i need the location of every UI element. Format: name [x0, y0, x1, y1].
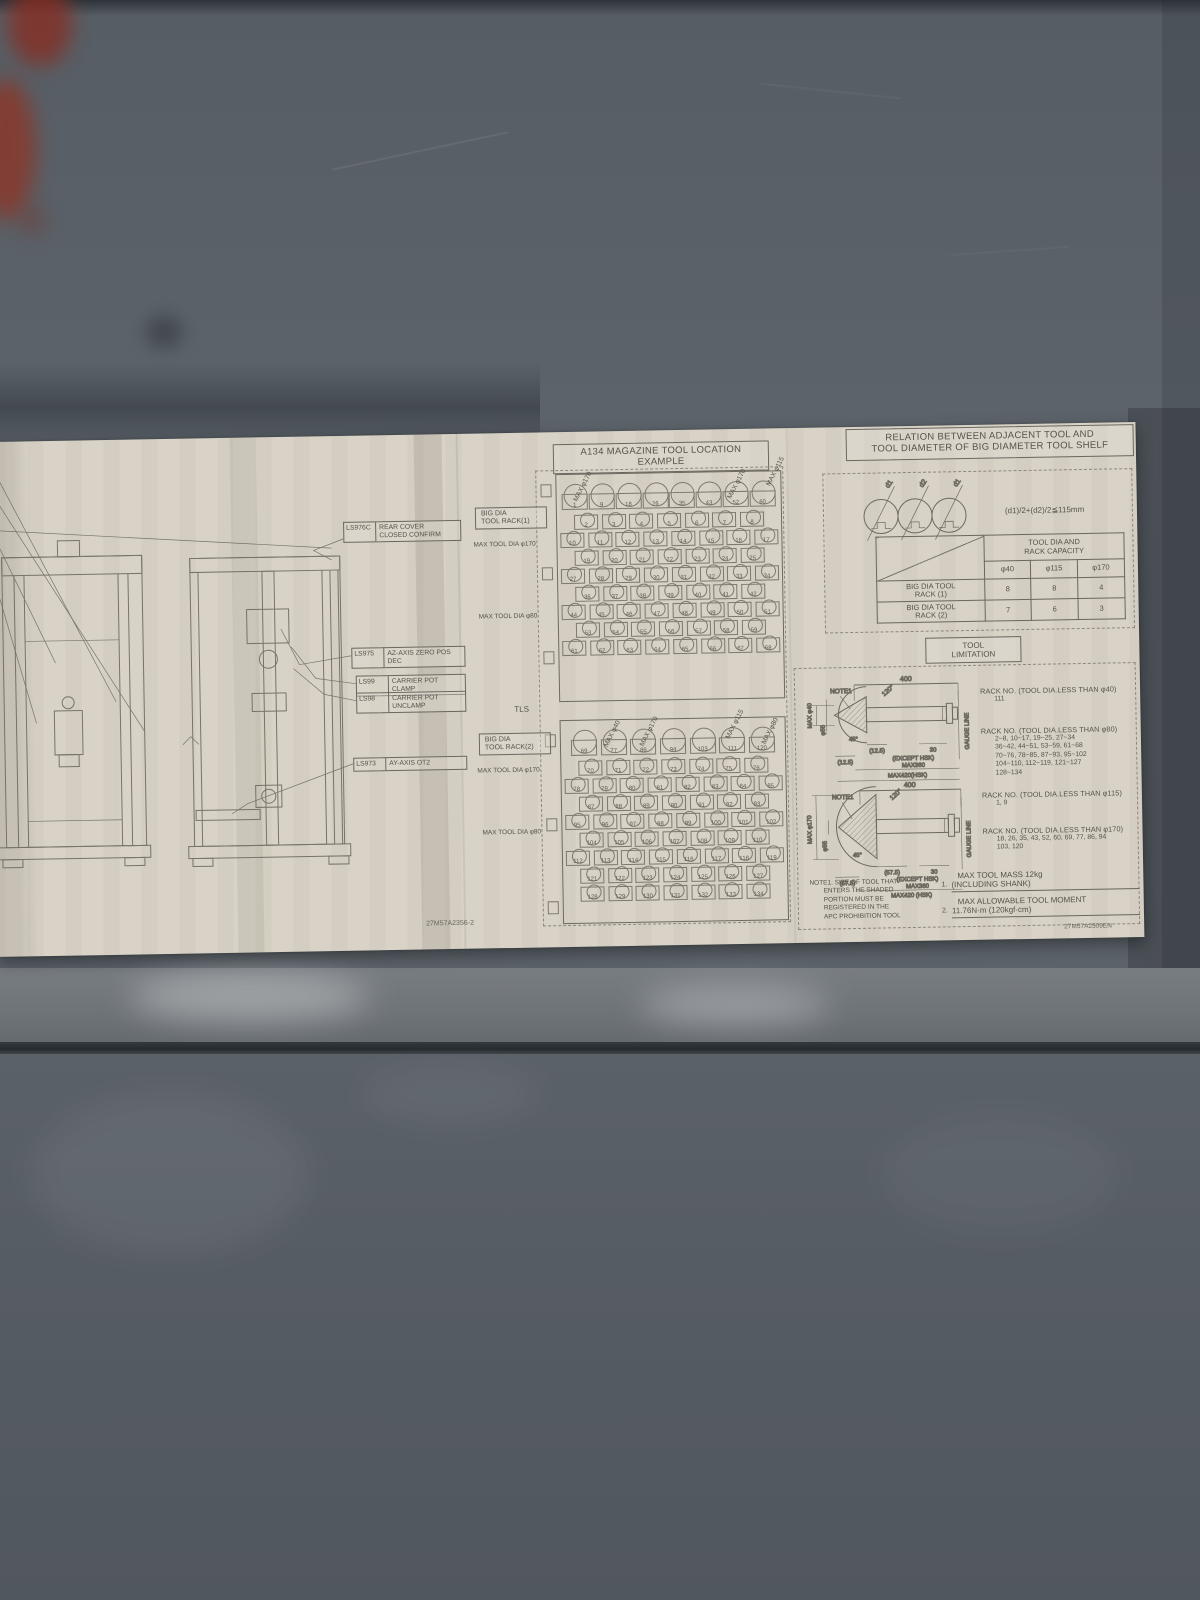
tool-pocket: 125: [691, 866, 715, 881]
tool-pocket: 35: [669, 492, 695, 508]
tool-pocket: 39: [658, 585, 682, 600]
tool-pocket: 13: [643, 531, 667, 546]
limitation-title-l2: LIMITATION: [928, 649, 1018, 660]
tool-pocket: 123: [635, 867, 659, 882]
tool-pocket: 70: [578, 760, 602, 775]
chain-rail-slot: [547, 901, 558, 914]
limit-switch-label: LS976C REAR COVER CLOSED CONFIRM: [343, 520, 461, 543]
tool-pocket: 51: [755, 601, 779, 616]
tool-pocket: 9: [588, 493, 614, 509]
tool-pocket: 113: [594, 850, 618, 865]
pocket-row: 19202122232425: [558, 547, 782, 566]
pocket-row: 4445464748495051: [559, 601, 783, 620]
table-header: TOOL DIA AND RACK CAPACITY: [984, 533, 1124, 561]
d1-label: d1: [884, 479, 894, 489]
rack1-line2: TOOL RACK(1): [477, 517, 545, 526]
rack2-lab2: RACK (2): [880, 611, 983, 621]
adjacent-tools-drawing: d1 d2 d1: [850, 478, 1001, 543]
tool-pocket: 131: [663, 885, 687, 900]
dim-max-dia40: MAX φ40: [807, 702, 813, 728]
tool-pocket: 3: [602, 514, 626, 529]
tool-pocket: 84: [731, 776, 755, 791]
tool-pocket: 126: [718, 866, 742, 881]
tool-pocket: 40: [686, 584, 710, 599]
pocket-row: 9596979899100101102: [562, 811, 786, 830]
tool-pocket: 115: [649, 849, 673, 864]
tool-pocket: 4: [629, 513, 653, 528]
tool-pocket: 119: [760, 847, 784, 862]
tool-pocket: 28: [589, 568, 613, 583]
dim-dia55: φ55: [823, 840, 829, 851]
tool-pocket: 61: [562, 641, 586, 656]
tool-pocket: 66: [701, 638, 725, 653]
ls-desc: AY-AXIS OT2: [386, 757, 433, 769]
panel-lower: [0, 1054, 1200, 1600]
pocket-row: 6162636465666768: [559, 637, 783, 656]
tool-pocket: 79: [592, 778, 616, 793]
tool-pocket: 20: [602, 550, 626, 565]
tool-pocket: 18: [615, 493, 641, 509]
pocket-row: 112113114115116117118119: [563, 847, 787, 866]
tool-pocket: 32: [699, 566, 723, 581]
rack1-val115: 8: [1031, 578, 1078, 600]
tool-pocket: 93: [745, 793, 769, 808]
tool-pocket: 10: [560, 533, 584, 548]
tool-pocket: 116: [677, 849, 701, 864]
pocket-row: 7879808182838485: [562, 775, 786, 794]
tool-pocket: 45: [589, 604, 613, 619]
tool-pocket: 78: [565, 779, 589, 794]
tool-pocket: 100: [704, 812, 728, 827]
rack2-val115: 6: [1031, 599, 1078, 621]
rack2-val170: 3: [1078, 598, 1125, 620]
rack-note-dia40: RACK NO. (TOOL DIA.LESS THAN φ40) 111: [980, 684, 1117, 704]
tool-pocket: 110: [745, 829, 769, 844]
dim-120deg: 120°: [880, 683, 896, 698]
drawing-number-right: 27M57A2509EN: [1064, 923, 1112, 931]
machine-elevation-drawing: [0, 514, 478, 922]
tool-pocket: 41: [713, 584, 737, 599]
tool-pocket: 104: [580, 832, 604, 847]
tool-pocket: 62: [590, 640, 614, 655]
tool-pocket: 5: [657, 513, 681, 528]
tool-pocket: 75: [717, 758, 741, 773]
tool-pocket: 27: [561, 569, 585, 584]
ls-desc: AZ-AXIS ZERO POS DEC: [384, 647, 464, 668]
tool-pocket: 22: [658, 549, 682, 564]
tool-pocket: 112: [566, 851, 590, 866]
tool-pocket: 103: [689, 737, 715, 753]
tool-pocket: 92: [717, 794, 741, 809]
pocket-row: 128129130131132133134: [563, 883, 787, 902]
tool-pocket: 11: [588, 532, 612, 547]
gauge-line-label: GAUGE LINE: [964, 713, 971, 750]
big-dia-rack2-label: BIG DIA TOOL RACK(2): [479, 732, 551, 755]
pocket-row: 121122123124125126127: [563, 865, 787, 884]
tool-pocket: 15: [699, 530, 723, 545]
tool-pocket: 36: [575, 586, 599, 601]
tool-pocket: 59: [742, 620, 766, 635]
machine-panel-photo: LS976C REAR COVER CLOSED CONFIRM LS975 A…: [0, 0, 1200, 1600]
chain-rail-slot: [543, 651, 554, 664]
tool-pocket: 31: [672, 567, 696, 582]
rack2-max-dia: MAX TOOL DIA φ170: [477, 766, 539, 774]
tool-pocket: 47: [645, 603, 669, 618]
tool-pocket: 96: [593, 814, 617, 829]
tool-pocket: 24: [713, 548, 737, 563]
tool-pocket: 82: [675, 777, 699, 792]
scratch-mark: [950, 246, 1070, 256]
tool-pocket: 90: [662, 795, 686, 810]
rack-note-dia115: RACK NO. (TOOL DIA.LESS THAN φ115) 1, 9: [982, 788, 1122, 808]
tool-pocket: 42: [741, 584, 765, 599]
tool-pocket: 17: [754, 529, 778, 544]
gauge-line-label: GAUGE LINE: [966, 821, 973, 858]
tool-pocket: 111: [719, 737, 745, 753]
panel-top-shadow: [0, 0, 1200, 16]
tool-pocket: 54: [603, 622, 627, 637]
pocket-row: 36373839404142: [558, 583, 782, 602]
tool-pocket: 134: [746, 883, 770, 898]
ls-desc: CARRIER POT UNCLAMP: [389, 692, 465, 713]
tool-pocket: 122: [608, 868, 632, 883]
tool-pocket: 68: [756, 637, 780, 652]
tool-pocket: 43: [696, 491, 722, 507]
tool-pocket: 21: [630, 549, 654, 564]
tool-pocket: 6: [685, 513, 709, 528]
col-dia115: φ115: [1030, 560, 1077, 579]
tool-pocket: 8: [740, 512, 764, 527]
red-paint-smudge: [20, 206, 46, 236]
tool-pocket: 80: [620, 778, 644, 793]
rack-note-dia170: RACK NO. (TOOL DIA.LESS THAN φ170) 18, 2…: [982, 824, 1123, 852]
ls-code: LS98: [357, 693, 389, 713]
tool-pocket: 50: [728, 602, 752, 617]
tool-pocket: 60: [749, 490, 775, 506]
magazine-title-text: A134 MAGAZINE TOOL LOCATION EXAMPLE: [580, 444, 741, 468]
rack1-max-dia: MAX TOOL DIA φ170: [473, 541, 535, 549]
table-diagonal-cell: [876, 535, 985, 581]
tool-pocket: 118: [732, 848, 756, 863]
limit-switch-label: LS98 CARRIER POT UNCLAMP: [356, 691, 466, 714]
red-paint-smudge: [0, 78, 36, 220]
dim-12-5-b: (12.5): [837, 760, 853, 766]
max-dia80-bottom: MAX TOOL DIA φ80: [482, 828, 541, 836]
red-paint-smudge: [8, 0, 72, 66]
ls-code: LS975: [352, 648, 384, 668]
tool-pocket: 107: [662, 831, 686, 846]
pocket-row: 2345678: [557, 511, 781, 530]
dim-400: 400: [904, 782, 916, 789]
dim-max-dia170: MAX φ170: [807, 815, 814, 844]
tool-pocket: 95: [565, 815, 589, 830]
tool-pocket: 91: [689, 794, 713, 809]
tool-pocket: 19: [575, 550, 599, 565]
relation-formula: (d1)/2+(d2)/2≦115mm: [1005, 505, 1084, 515]
d2-label: d2: [918, 478, 928, 488]
tool-pocket: 98: [648, 813, 672, 828]
drawing-number-left: 27M57A2356-2: [426, 920, 474, 928]
ls-code: LS976C: [344, 522, 376, 542]
chain-rail-slot: [546, 818, 557, 831]
tool-pocket: 44: [562, 605, 586, 620]
tool-limitation-title: TOOL LIMITATION: [925, 636, 1021, 664]
tool-pocket: 71: [606, 760, 630, 775]
tool-pocket: 38: [631, 585, 655, 600]
magazine-grid-top: 1918263543526023456781011121314151617192…: [555, 470, 785, 702]
tool-pocket: 128: [580, 886, 604, 901]
rack-note-dia80: RACK NO. (TOOL DIA.LESS THAN φ80) 2~8, 1…: [981, 724, 1118, 778]
tool-pocket: 72: [634, 759, 658, 774]
technical-diagram-sheet: LS976C REAR COVER CLOSED CONFIRM LS975 A…: [0, 422, 1144, 957]
tool-pocket: 117: [704, 848, 728, 863]
tool-pocket: 14: [671, 531, 695, 546]
smudge: [30, 1094, 310, 1254]
tool-pocket: 102: [759, 811, 783, 826]
tls-label: TLS: [514, 705, 529, 714]
tool-pocket: 85: [758, 775, 782, 790]
rack1-lab2: RACK (1): [879, 590, 982, 600]
scratch-mark: [760, 83, 899, 100]
scratch-mark: [332, 131, 508, 170]
big-dia-rack1-label: BIG DIA TOOL RACK(1): [475, 506, 547, 529]
limit-switch-label: LS975 AZ-AXIS ZERO POS DEC: [351, 646, 465, 669]
note1-callout: NOTE1: [830, 688, 852, 695]
tool-pocket: 53: [576, 622, 600, 637]
dim-120deg: 120°: [888, 787, 904, 802]
dim-12-5: (12.5): [869, 748, 885, 754]
tool-pocket: 121: [580, 868, 604, 883]
pocket-row: 53545556575859: [559, 619, 783, 638]
tool-pocket: 83: [703, 776, 727, 791]
tool-pocket: 133: [719, 884, 743, 899]
mass-item-number: 1.: [941, 881, 947, 888]
magazine-grid-bottom: 6977869410311112070717273747576787980818…: [560, 716, 790, 924]
ls-desc: REAR COVER CLOSED CONFIRM: [376, 521, 456, 542]
tool-pocket: 37: [603, 586, 627, 601]
pocket-row: 104105106107108109110: [563, 829, 787, 848]
relation-title: RELATION BETWEEN ADJACENT TOOL AND TOOL …: [845, 424, 1134, 461]
note1-text: NOTE1. SIZE OF TOOL THAT ENTERS THE SHAD…: [809, 877, 942, 921]
tool-pocket: 97: [621, 814, 645, 829]
tool-pocket: 56: [659, 621, 683, 636]
tool-pocket: 33: [727, 566, 751, 581]
tool-pocket: 57: [686, 620, 710, 635]
smudge: [360, 1064, 540, 1124]
tool-pocket: 109: [718, 830, 742, 845]
big-dia-pocket-row: 19182635435260: [557, 490, 781, 510]
dim-45deg: 45°: [849, 737, 859, 743]
rack2-val40: 7: [985, 599, 1031, 621]
tool-pocket: 16: [726, 530, 750, 545]
tool-pocket: 73: [661, 759, 685, 774]
tool-pocket: 7: [712, 512, 736, 527]
pocket-row: 70717273747576: [561, 757, 785, 776]
max360-label: MAX360: [902, 763, 926, 769]
tool-pocket: 30: [644, 567, 668, 582]
rack1-val40: 8: [985, 578, 1031, 600]
tool-pocket: 23: [685, 548, 709, 563]
tool-pocket: 12: [616, 532, 640, 547]
dim-dia55: φ55: [821, 724, 827, 735]
d1-label: d1: [952, 478, 962, 488]
tool-pocket: 101: [731, 812, 755, 827]
tool-pocket: 64: [645, 639, 669, 654]
tool-pocket: 132: [691, 884, 715, 899]
tool-pocket: 108: [690, 830, 714, 845]
tool-pocket: 127: [746, 865, 770, 880]
tool-limit-drawing-small: 400 NOTE1 120° GAUGE LINE MAX φ40 φ55 45…: [796, 669, 978, 784]
tool-pocket: 114: [621, 850, 645, 865]
ls-code: LS973: [354, 758, 386, 770]
tool-pocket: 94: [660, 738, 686, 754]
smudge: [880, 1114, 1120, 1234]
tool-pocket: 106: [635, 831, 659, 846]
tool-pocket: 48: [672, 603, 696, 618]
tool-pocket: 65: [673, 639, 697, 654]
tool-pocket: 99: [676, 813, 700, 828]
dim-400: 400: [900, 676, 912, 683]
moment-item-number: 2.: [942, 907, 948, 914]
tool-pocket: 81: [648, 777, 672, 792]
tool-pocket: 2: [574, 514, 598, 529]
tool-pocket: 129: [608, 886, 632, 901]
pocket-row: 87888990919293: [562, 793, 786, 812]
tool-pocket: 67: [728, 638, 752, 653]
dim-30: 30: [931, 870, 938, 876]
white-smudge: [130, 972, 370, 1022]
tool-pocket: 105: [607, 832, 631, 847]
tool-pocket: 74: [689, 758, 713, 773]
table-header-line2: RACK CAPACITY: [987, 546, 1122, 557]
max-tool-mass: MAX TOOL MASS 12kg (INCLUDING SHANK): [951, 868, 1139, 892]
row-rack1-label: BIG DIA TOOL RACK (1): [877, 579, 985, 602]
rack-capacity-table: TOOL DIA AND RACK CAPACITY φ40 φ115 φ170…: [875, 532, 1125, 623]
dim-57-5: (57.5): [884, 870, 900, 876]
col-dia170: φ170: [1077, 559, 1124, 578]
col-dia40: φ40: [984, 560, 1030, 579]
tool-pocket: 55: [631, 621, 655, 636]
tool-pocket: 29: [616, 568, 640, 583]
tool-pocket: 89: [634, 795, 658, 810]
tool-pocket: 87: [579, 796, 603, 811]
rack1-val170: 4: [1078, 577, 1125, 599]
moment-line2: 11.76N·m (120kgf·cm): [952, 903, 1140, 915]
big-dia-pocket-row: 69778694103111120: [561, 736, 785, 756]
tool-pocket: 34: [755, 565, 779, 580]
max-dia80-top: MAX TOOL DIA φ80: [479, 613, 538, 621]
tool-pocket: 58: [714, 620, 738, 635]
dark-smudge: [146, 316, 182, 348]
rack2-line2: TOOL RACK(2): [481, 743, 549, 752]
max-tool-moment: MAX ALLOWABLE TOOL MOMENT 11.76N·m (120k…: [952, 894, 1140, 918]
dim-45deg: 45°: [853, 853, 863, 859]
except-hsk-label: (EXCEPT HSK): [892, 756, 934, 763]
tool-pocket: 124: [663, 867, 687, 882]
tool-pocket: 88: [607, 796, 631, 811]
row-rack2-label: BIG DIA TOOL RACK (2): [877, 600, 985, 623]
relation-title-line2: TOOL DIAMETER OF BIG DIAMETER TOOL SHELF: [849, 440, 1131, 456]
panel-seam: [0, 1042, 1200, 1054]
tool-pocket: 26: [642, 492, 668, 508]
chain-rail-slot: [541, 568, 552, 581]
chain-rail-slot: [540, 484, 551, 497]
mass-line2: (INCLUDING SHANK): [951, 877, 1139, 889]
tool-pocket: 49: [700, 602, 724, 617]
pocket-row: 1011121314151617: [557, 529, 781, 548]
tool-pocket: 63: [618, 640, 642, 655]
tool-pocket: 25: [740, 548, 764, 563]
dim-30: 30: [930, 748, 937, 754]
tool-pocket: 46: [617, 604, 641, 619]
tool-pocket: 130: [636, 885, 660, 900]
limit-switch-label: LS973 AY-AXIS OT2: [353, 756, 467, 772]
tool-pocket: 69: [571, 739, 597, 755]
white-smudge: [640, 985, 830, 1025]
tool-pocket: 76: [744, 757, 768, 772]
pocket-row: 2728293031323334: [558, 565, 782, 584]
